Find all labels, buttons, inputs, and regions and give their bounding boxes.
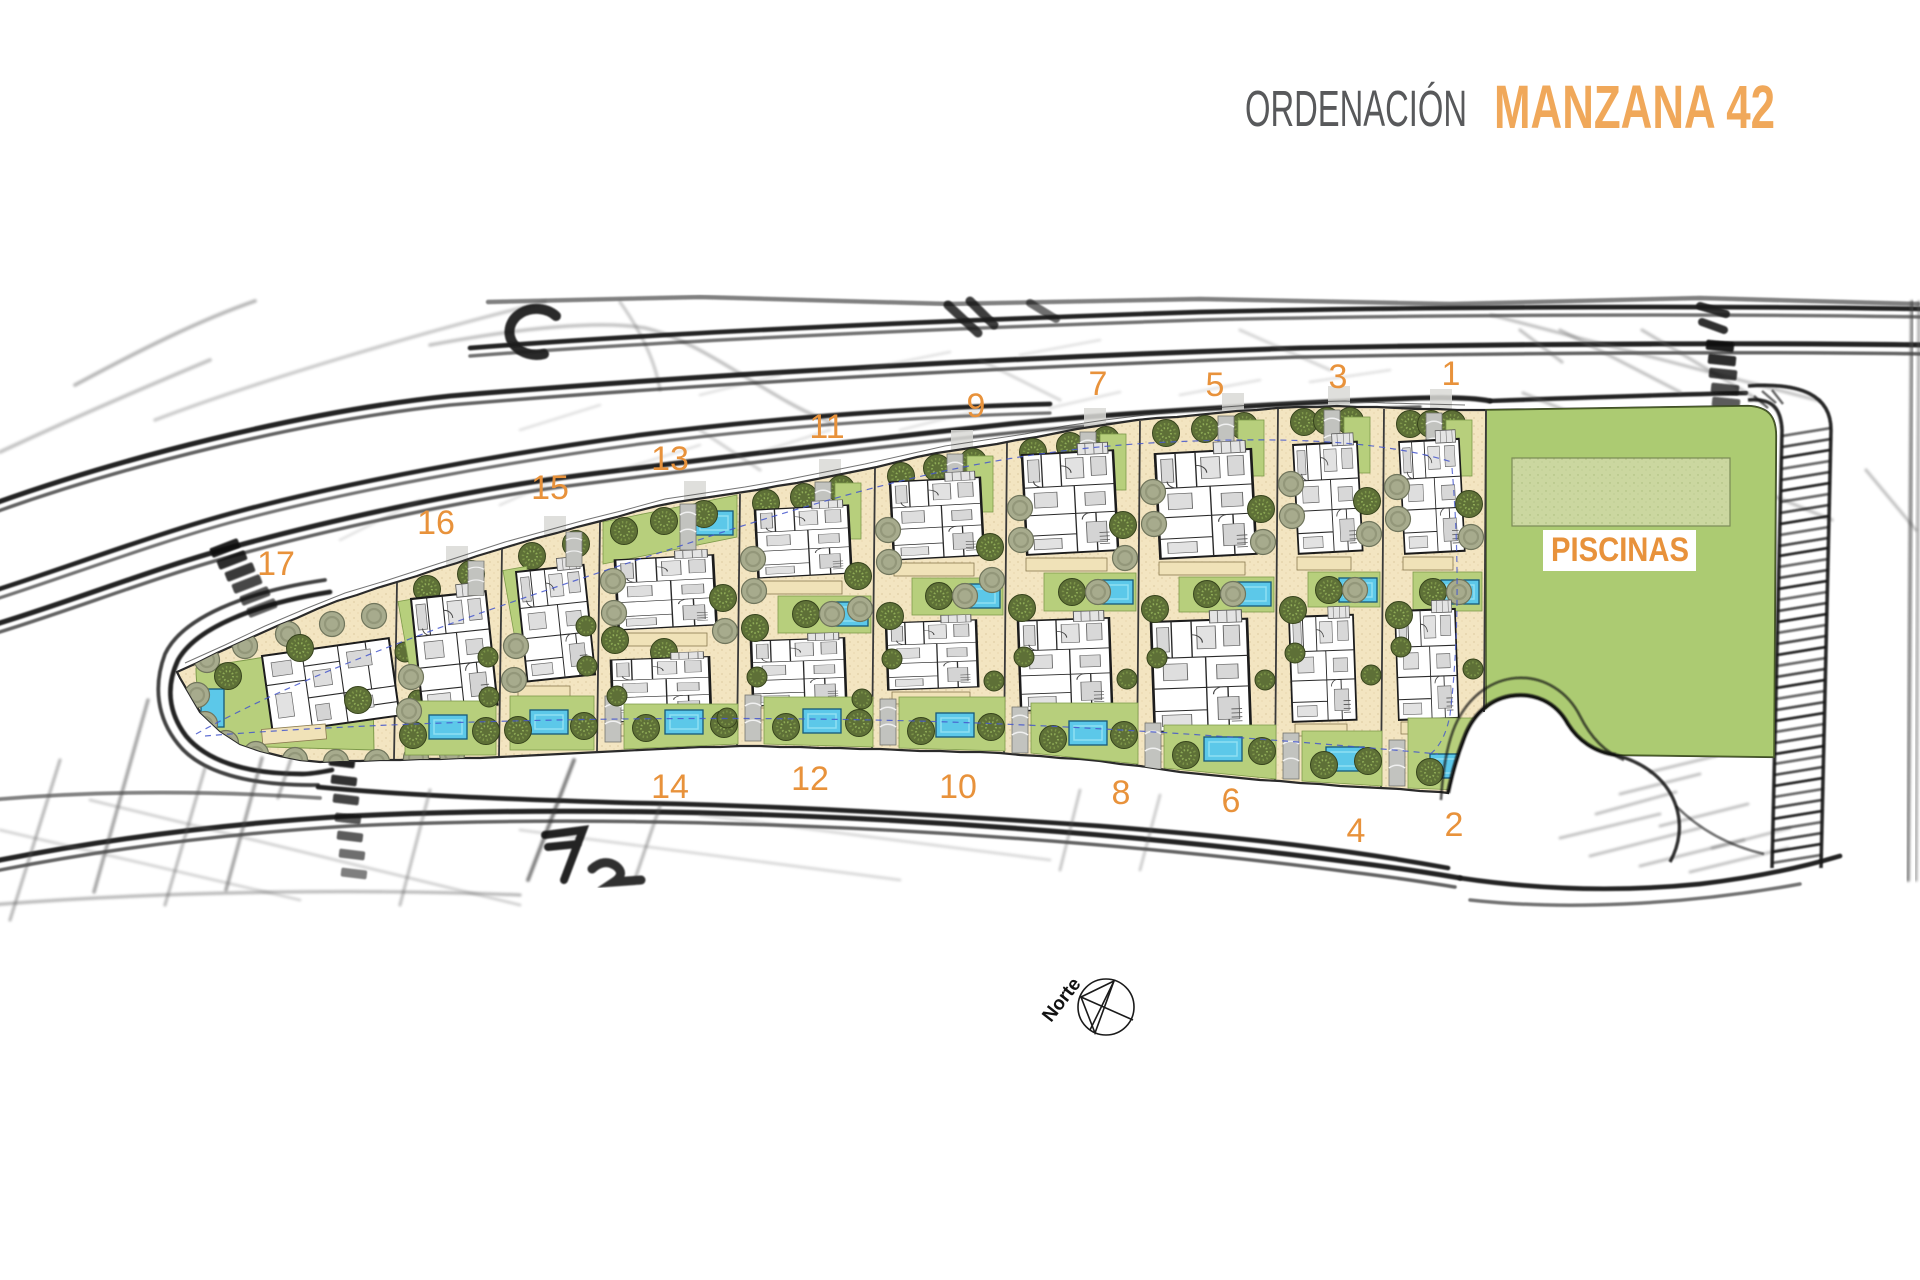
svg-text:13: 13 — [651, 440, 689, 478]
svg-text:ORDENACIÓN: ORDENACIÓN — [1245, 80, 1467, 137]
svg-text:1: 1 — [1442, 355, 1461, 393]
svg-text:9: 9 — [967, 387, 986, 425]
svg-text:2: 2 — [1445, 806, 1464, 844]
svg-text:PISCINAS: PISCINAS — [1551, 531, 1689, 569]
svg-text:8: 8 — [1112, 774, 1131, 812]
svg-text:15: 15 — [531, 469, 569, 507]
svg-text:MANZANA 42: MANZANA 42 — [1494, 73, 1775, 141]
svg-text:14: 14 — [651, 768, 689, 806]
svg-text:17: 17 — [257, 545, 295, 583]
svg-text:7: 7 — [1089, 365, 1108, 403]
svg-text:5: 5 — [1206, 366, 1225, 404]
svg-text:16: 16 — [417, 504, 455, 542]
svg-text:4: 4 — [1347, 812, 1366, 850]
svg-text:12: 12 — [791, 760, 829, 798]
svg-text:6: 6 — [1222, 782, 1241, 820]
svg-text:11: 11 — [809, 408, 844, 446]
svg-text:3: 3 — [1329, 358, 1348, 396]
svg-text:10: 10 — [939, 768, 977, 806]
